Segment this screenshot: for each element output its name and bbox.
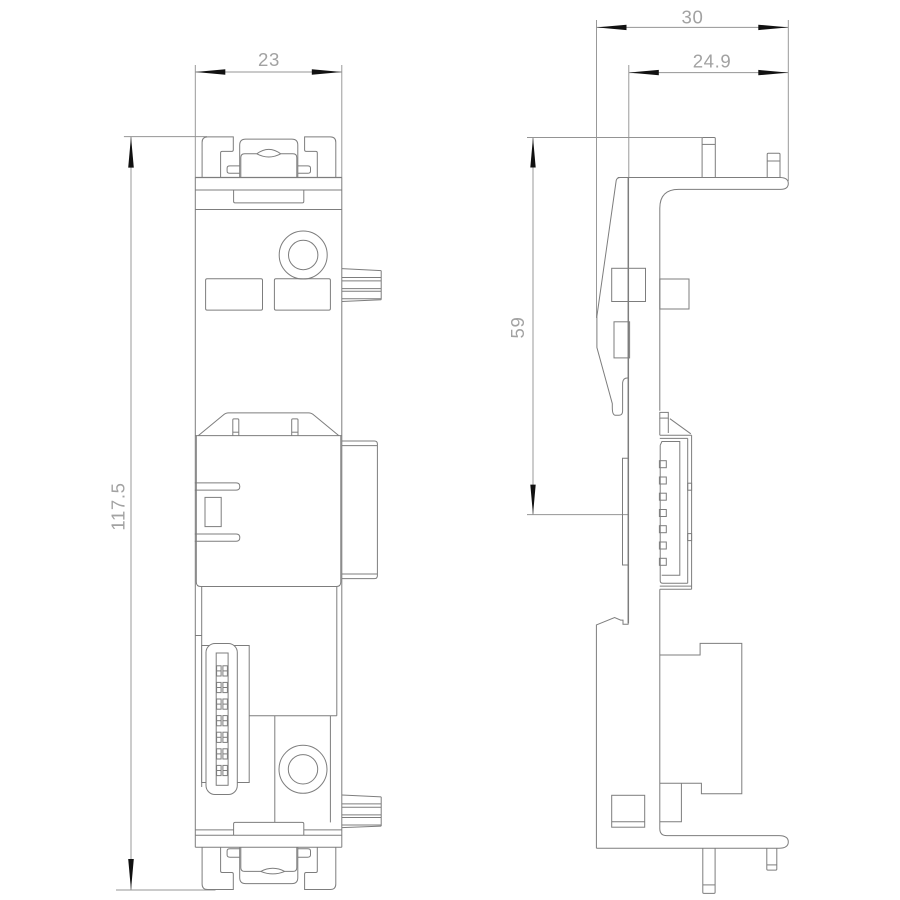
svg-text:23: 23 bbox=[258, 49, 280, 70]
svg-text:30: 30 bbox=[682, 7, 704, 28]
svg-text:117.5: 117.5 bbox=[108, 482, 129, 530]
svg-text:59: 59 bbox=[507, 317, 528, 339]
svg-text:24.9: 24.9 bbox=[693, 51, 732, 72]
